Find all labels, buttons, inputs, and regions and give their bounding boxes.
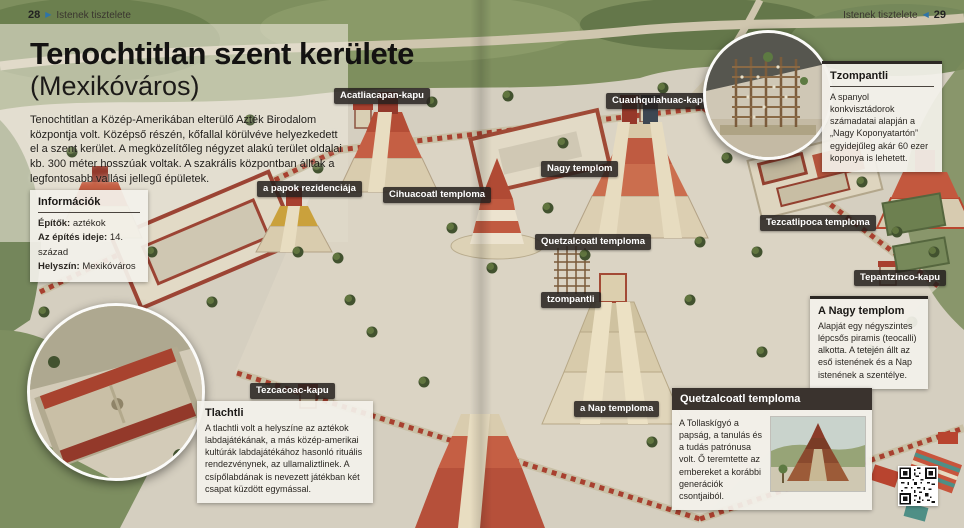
info-value: Mexikóváros xyxy=(82,261,135,272)
map-label-tezcatlipoca-temploma: Tezcatlipoca temploma xyxy=(760,215,876,231)
callout-quetzalcoatl: Quetzalcoatl temploma A Tollaskígyó a pa… xyxy=(672,388,872,510)
map-label-tezcacoac-kapu: Tezcacoac-kapu xyxy=(250,383,335,399)
info-box-title: Információk xyxy=(30,190,148,211)
map-label-tepantzinco-kapu: Tepantzinco-kapu xyxy=(854,270,946,286)
map-label-cihuacoatl-temploma: Cihuacoatl temploma xyxy=(383,187,491,203)
callout-body: A tlachtli volt a helyszíne az aztékok l… xyxy=(197,422,373,503)
callout-body: Alapját egy négyszintes lépcsős piramis … xyxy=(810,320,928,389)
page-number-right: 29 xyxy=(934,9,946,21)
info-value: aztékok xyxy=(73,218,106,229)
info-row-location: Helyszín: Mexikóváros xyxy=(38,260,140,274)
qr-code xyxy=(898,466,938,506)
section-title-right: Istenek tisztelete xyxy=(843,10,917,21)
callout-title: Quetzalcoatl temploma xyxy=(672,388,872,410)
info-label: Építők: xyxy=(38,218,70,229)
tzompantli-closeup-inset xyxy=(703,30,833,160)
page-nav-left-arrow-icon: ◀ xyxy=(923,11,929,19)
info-label: Az építés ideje: xyxy=(38,232,107,243)
divider xyxy=(38,212,140,213)
map-label-quetzalcoatl-temploma: Quetzalcoatl temploma xyxy=(535,234,651,250)
callout-title: Tlachtli xyxy=(197,401,373,422)
info-rows: Építők: aztékok Az építés ideje: 14. szá… xyxy=(30,217,148,282)
folio-right: Istenek tisztelete ◀ 29 xyxy=(843,9,946,21)
callout-tlachtli: Tlachtli A tlachtli volt a helyszíne az … xyxy=(197,401,373,503)
page-nav-right-arrow-icon: ▶ xyxy=(45,11,51,19)
book-spread: 28 ▶ Istenek tisztelete Istenek tisztele… xyxy=(0,0,964,528)
callout-title: Tzompantli xyxy=(822,64,942,85)
section-title-left: Istenek tisztelete xyxy=(56,10,130,21)
ballcourt-illustration xyxy=(30,306,202,478)
quetzalcoatl-temple-photo xyxy=(771,417,865,491)
folio-left: 28 ▶ Istenek tisztelete xyxy=(28,9,131,21)
intro-paragraph: Tenochtitlan a Közép-Amerikában elterülő… xyxy=(30,113,342,187)
map-label-acatliacapan-kapu: Acatliacapan-kapu xyxy=(334,88,430,104)
page-title: Tenochtitlan szent kerülete xyxy=(30,38,500,70)
callout-content: A Tollaskígyó a papság, a tanulás és a t… xyxy=(672,410,872,510)
info-row-date: Az építés ideje: 14. század xyxy=(38,231,140,260)
map-label-nap-temploma: a Nap temploma xyxy=(574,401,659,417)
map-label-papok-rezidenciaja: a papok rezidenciája xyxy=(257,181,362,197)
callout-title: A Nagy templom xyxy=(810,299,928,320)
callout-body: A Tollaskígyó a papság, a tanulás és a t… xyxy=(679,417,765,502)
info-row-builders: Építők: aztékok xyxy=(38,217,140,231)
map-label-tzompantli: tzompantli xyxy=(541,292,601,308)
map-label-nagy-templom: Nagy templom xyxy=(541,161,618,177)
info-label: Helyszín: xyxy=(38,261,80,272)
skull-rack-illustration xyxy=(706,33,830,157)
tlachtli-closeup-inset xyxy=(27,303,205,481)
callout-body: A spanyol konkvisztádorok számadatai ala… xyxy=(822,91,942,172)
callout-nagy-templom: A Nagy templom Alapját egy négyszintes l… xyxy=(810,296,928,389)
info-box: Információk Építők: aztékok Az építés id… xyxy=(30,190,148,282)
callout-tzompantli: Tzompantli A spanyol konkvisztádorok szá… xyxy=(822,61,942,172)
map-label-cuauhquiahuac-kapu: Cuauhquiahuac-kapu xyxy=(606,93,715,109)
divider xyxy=(830,86,934,87)
page-number-left: 28 xyxy=(28,9,40,21)
